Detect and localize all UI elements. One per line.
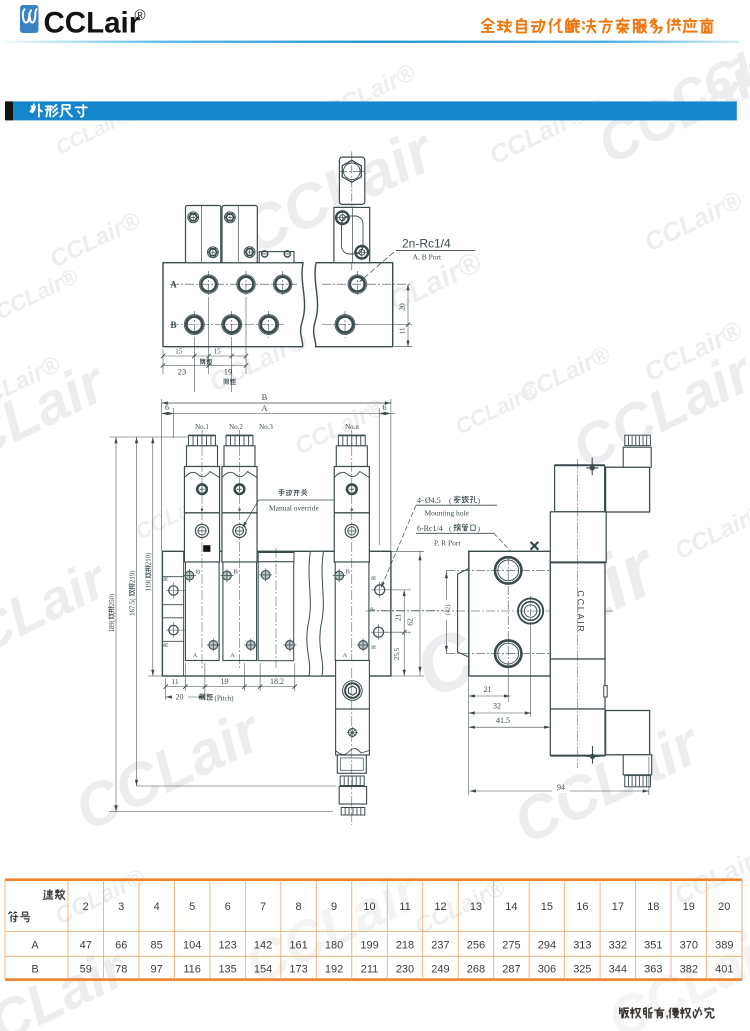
svg-text:41.5: 41.5 — [496, 716, 510, 725]
svg-text:10: 10 — [363, 901, 375, 913]
svg-text:85: 85 — [151, 940, 163, 952]
svg-text:256: 256 — [467, 940, 485, 952]
svg-text:15: 15 — [541, 901, 553, 913]
svg-text:363: 363 — [644, 964, 662, 976]
svg-text:11: 11 — [399, 901, 410, 913]
svg-text:78: 78 — [115, 964, 127, 976]
svg-text:210): 210) — [146, 553, 153, 565]
svg-text:25.5: 25.5 — [393, 647, 401, 660]
svg-text:2n-Rc1/4: 2n-Rc1/4 — [402, 237, 451, 251]
svg-text:No.3: No.3 — [259, 423, 273, 431]
svg-text:370: 370 — [680, 940, 698, 952]
svg-text:No.n: No.n — [345, 423, 359, 431]
svg-text:6-Rc1/4: 6-Rc1/4 — [417, 524, 443, 533]
svg-text:389: 389 — [715, 940, 733, 952]
svg-text:B: B — [346, 569, 351, 576]
svg-text:20: 20 — [176, 693, 184, 702]
svg-text:4-: 4- — [417, 496, 424, 505]
svg-text:180: 180 — [325, 940, 343, 952]
svg-text:401: 401 — [715, 964, 733, 976]
svg-text:(Pitch): (Pitch) — [215, 695, 235, 703]
svg-text:4: 4 — [154, 901, 160, 913]
svg-text:B: B — [262, 392, 268, 402]
svg-text:20: 20 — [398, 303, 407, 311]
svg-text:94: 94 — [557, 783, 565, 792]
svg-text:A: A — [31, 940, 39, 952]
svg-text:268: 268 — [467, 964, 485, 976]
svg-text:P, R Port: P, R Port — [434, 539, 461, 548]
svg-text:189(: 189( — [109, 619, 116, 632]
svg-text:A: A — [170, 280, 177, 290]
svg-text:No.2: No.2 — [229, 423, 243, 431]
svg-text:173: 173 — [289, 964, 307, 976]
svg-text:7: 7 — [260, 901, 266, 913]
svg-text:A: A — [230, 652, 235, 659]
svg-text:116: 116 — [183, 964, 201, 976]
svg-text:250): 250) — [109, 594, 116, 606]
svg-text:B: B — [196, 569, 201, 576]
svg-text:,: , — [666, 1008, 669, 1020]
svg-text:287: 287 — [502, 964, 520, 976]
svg-text:R: R — [371, 644, 378, 649]
svg-text:Ø4.5: Ø4.5 — [425, 496, 441, 505]
svg-text:313: 313 — [573, 940, 591, 952]
svg-text:344: 344 — [609, 964, 627, 976]
svg-text:3: 3 — [118, 901, 124, 913]
svg-text:8: 8 — [296, 901, 302, 913]
svg-text:325: 325 — [573, 964, 591, 976]
svg-text:211: 211 — [361, 964, 379, 976]
svg-text:294: 294 — [538, 940, 556, 952]
svg-text:9: 9 — [331, 901, 337, 913]
svg-text:A: A — [261, 403, 268, 413]
svg-text:59: 59 — [80, 964, 92, 976]
svg-text:123: 123 — [218, 940, 236, 952]
svg-text:275: 275 — [502, 940, 520, 952]
svg-text:A, B Port: A, B Port — [413, 253, 442, 262]
svg-text:21: 21 — [394, 614, 403, 622]
svg-text:CCLAIR: CCLAIR — [576, 590, 586, 633]
svg-text:2: 2 — [83, 901, 89, 913]
svg-text:192: 192 — [325, 964, 343, 976]
svg-text:119(: 119( — [146, 579, 153, 592]
svg-text:16: 16 — [576, 901, 588, 913]
svg-text:104: 104 — [183, 940, 201, 952]
svg-text:135: 135 — [218, 964, 236, 976]
svg-text:66: 66 — [115, 940, 127, 952]
svg-text:23: 23 — [178, 367, 187, 377]
svg-text:12: 12 — [434, 901, 446, 913]
svg-text:62: 62 — [406, 618, 415, 626]
svg-text:15: 15 — [175, 348, 183, 356]
svg-text:(42): (42) — [444, 605, 451, 616]
svg-text:351: 351 — [644, 940, 662, 952]
svg-text:154: 154 — [254, 964, 272, 976]
svg-text:167.5(: 167.5( — [129, 598, 136, 616]
svg-text:6: 6 — [165, 403, 169, 412]
svg-text:R: R — [163, 576, 170, 581]
svg-text:5: 5 — [189, 901, 195, 913]
svg-text:47: 47 — [80, 940, 92, 952]
svg-text:18.2: 18.2 — [270, 677, 284, 686]
svg-text:11: 11 — [398, 327, 407, 334]
svg-text:218: 218 — [396, 940, 414, 952]
svg-text:306: 306 — [538, 964, 556, 976]
svg-text:230: 230 — [396, 964, 414, 976]
svg-text:Manual override: Manual override — [269, 504, 319, 513]
svg-text:15: 15 — [214, 348, 222, 356]
svg-text:219): 219) — [129, 571, 136, 583]
svg-text:19: 19 — [224, 367, 233, 377]
svg-text:32: 32 — [493, 702, 501, 711]
svg-text:18: 18 — [647, 901, 659, 913]
svg-text:14: 14 — [505, 901, 517, 913]
svg-text:A: A — [342, 652, 347, 659]
svg-text:19: 19 — [683, 901, 695, 913]
svg-text:13: 13 — [470, 901, 482, 913]
svg-text:R: R — [371, 575, 378, 580]
svg-text:382: 382 — [680, 964, 698, 976]
svg-text:199: 199 — [360, 940, 378, 952]
svg-text:332: 332 — [609, 940, 627, 952]
svg-text:B: B — [233, 569, 238, 576]
svg-text:20: 20 — [718, 901, 730, 913]
svg-text:19: 19 — [221, 677, 229, 686]
svg-text:249: 249 — [431, 964, 449, 976]
svg-text:Mounting hole: Mounting hole — [425, 509, 470, 518]
svg-text:142: 142 — [254, 940, 272, 952]
svg-text:161: 161 — [289, 940, 307, 952]
svg-text:6: 6 — [225, 901, 231, 913]
svg-text:97: 97 — [151, 964, 163, 976]
svg-text:6: 6 — [383, 403, 387, 412]
svg-text:11: 11 — [171, 677, 178, 686]
svg-text:17: 17 — [612, 901, 624, 913]
svg-text:B: B — [170, 320, 176, 330]
svg-text:R: R — [163, 642, 170, 647]
svg-text:B: B — [31, 964, 38, 976]
svg-text:®: ® — [135, 7, 146, 24]
svg-text:A: A — [193, 652, 198, 659]
svg-text:21: 21 — [484, 685, 492, 694]
svg-text:CCLair: CCLair — [44, 7, 141, 40]
svg-text:No.1: No.1 — [195, 423, 209, 431]
svg-text:237: 237 — [431, 940, 449, 952]
